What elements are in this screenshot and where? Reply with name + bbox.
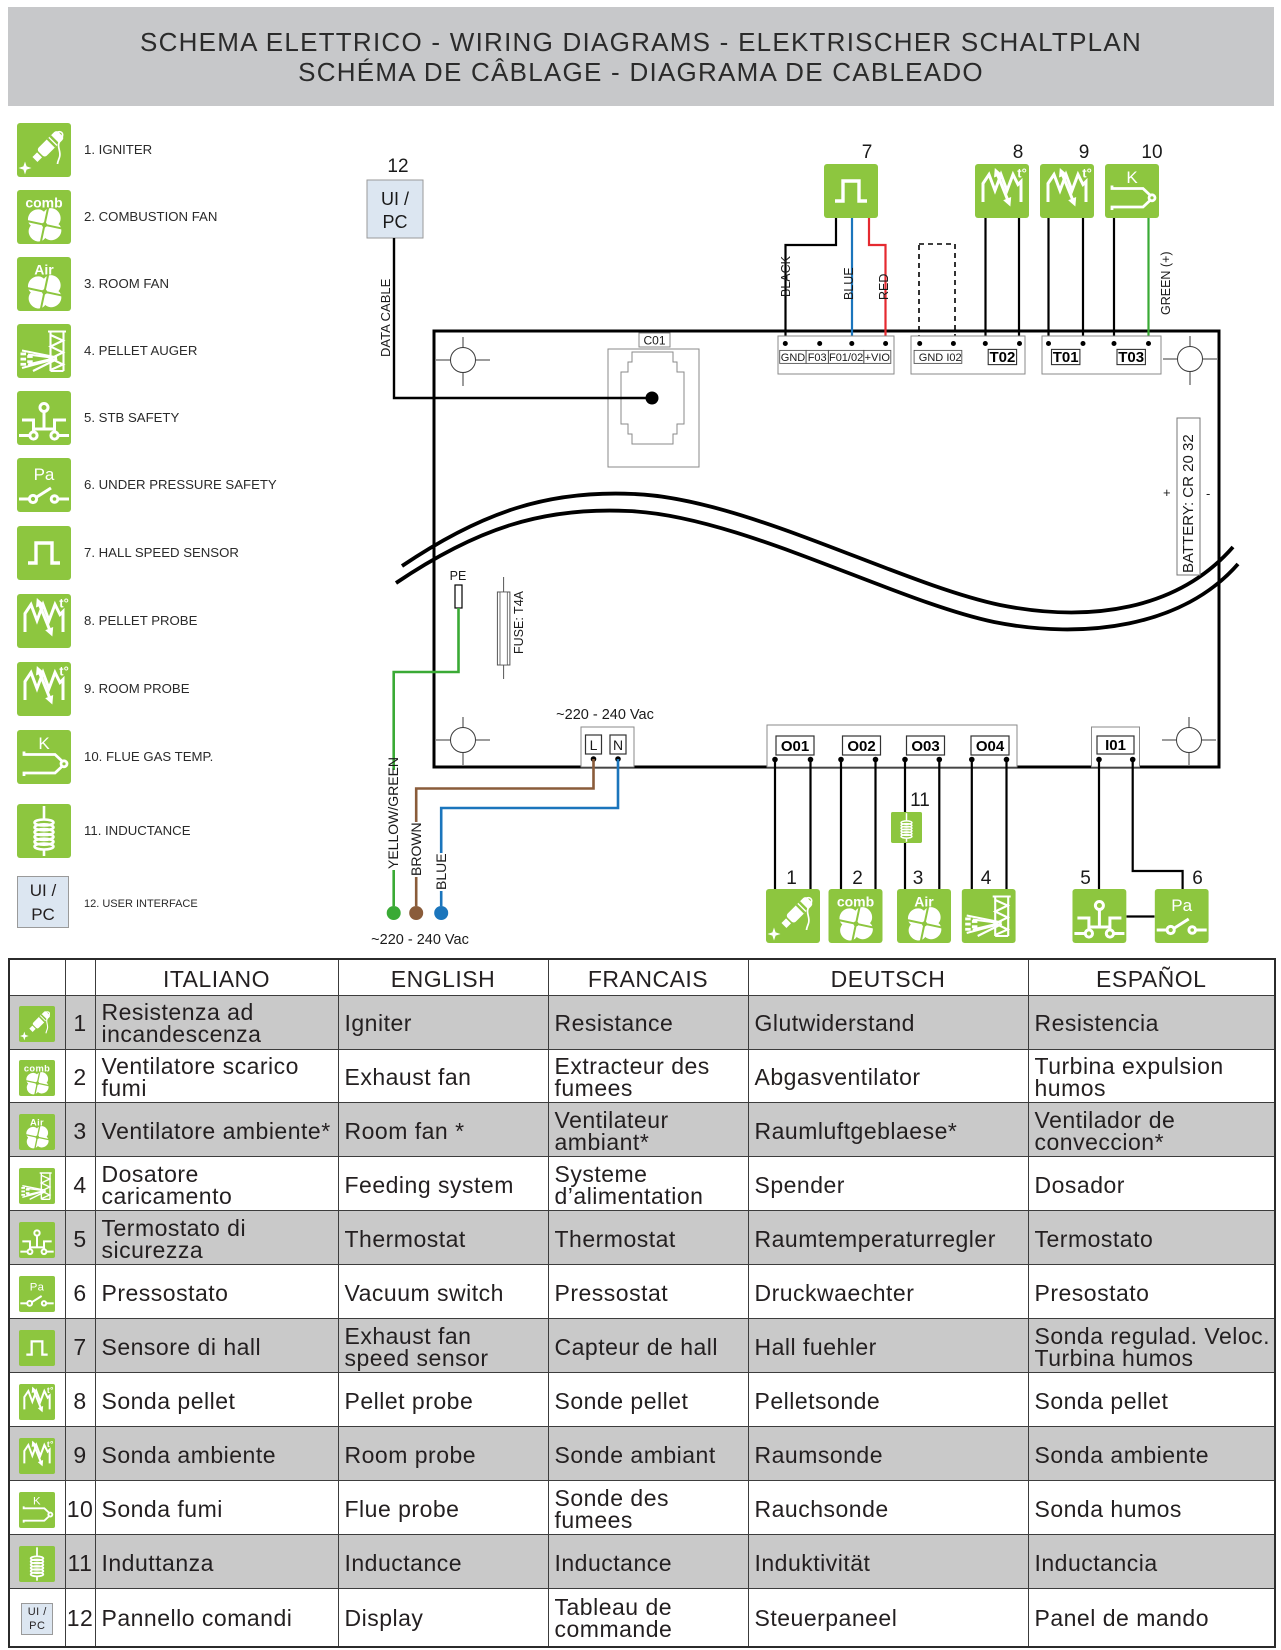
svg-text:I01: I01 <box>1105 737 1126 754</box>
svg-text:BATTERY: CR 20 32: BATTERY: CR 20 32 <box>1180 434 1197 573</box>
svg-text:2: 2 <box>852 868 863 889</box>
svg-text:L: L <box>590 737 598 753</box>
svg-text:5: 5 <box>1080 868 1091 889</box>
svg-text:12: 12 <box>387 156 408 177</box>
svg-text:GREEN (+): GREEN (+) <box>1159 251 1173 315</box>
svg-text:O04: O04 <box>976 738 1005 755</box>
svg-text:YELLOW/GREEN: YELLOW/GREEN <box>385 757 401 869</box>
svg-text:~220 - 240 Vac: ~220 - 240 Vac <box>556 707 654 723</box>
svg-text:BLUE: BLUE <box>433 853 449 890</box>
svg-text:T02: T02 <box>989 349 1015 366</box>
svg-text:3: 3 <box>913 868 924 889</box>
svg-text:C01: C01 <box>643 334 665 348</box>
svg-text:11: 11 <box>910 790 930 811</box>
svg-text:7: 7 <box>862 142 873 163</box>
svg-text:8: 8 <box>1013 142 1024 163</box>
svg-text:N: N <box>613 737 623 753</box>
svg-text:O03: O03 <box>911 738 939 755</box>
svg-text:O02: O02 <box>847 738 875 755</box>
svg-text:DATA CABLE: DATA CABLE <box>378 278 393 357</box>
svg-text:BLUE: BLUE <box>842 267 856 300</box>
svg-text:O01: O01 <box>781 738 809 755</box>
svg-text:+: + <box>1163 485 1171 500</box>
svg-text:6: 6 <box>1192 868 1203 889</box>
svg-text:PE: PE <box>450 569 467 583</box>
svg-text:I02: I02 <box>946 352 961 364</box>
svg-text:~220 - 240 Vac: ~220 - 240 Vac <box>371 932 469 948</box>
svg-text:F03: F03 <box>808 352 827 364</box>
svg-text:BLACK: BLACK <box>779 255 793 297</box>
svg-text:T03: T03 <box>1118 349 1144 366</box>
svg-text:FUSE: T4A: FUSE: T4A <box>512 590 526 654</box>
svg-text:+VIO: +VIO <box>865 352 891 364</box>
svg-text:1: 1 <box>786 868 797 889</box>
svg-text:BROWN: BROWN <box>408 822 424 876</box>
svg-text:-: - <box>1206 486 1210 501</box>
svg-text:RED: RED <box>877 274 891 300</box>
svg-text:UI /: UI / <box>381 189 409 209</box>
svg-text:9: 9 <box>1079 142 1090 163</box>
svg-text:T01: T01 <box>1053 349 1079 366</box>
svg-text:10: 10 <box>1141 142 1162 163</box>
svg-text:4: 4 <box>981 868 992 889</box>
svg-text:F01/02: F01/02 <box>829 352 863 364</box>
svg-text:GND: GND <box>919 352 944 364</box>
svg-text:GND: GND <box>781 352 806 364</box>
svg-text:PC: PC <box>382 212 407 232</box>
